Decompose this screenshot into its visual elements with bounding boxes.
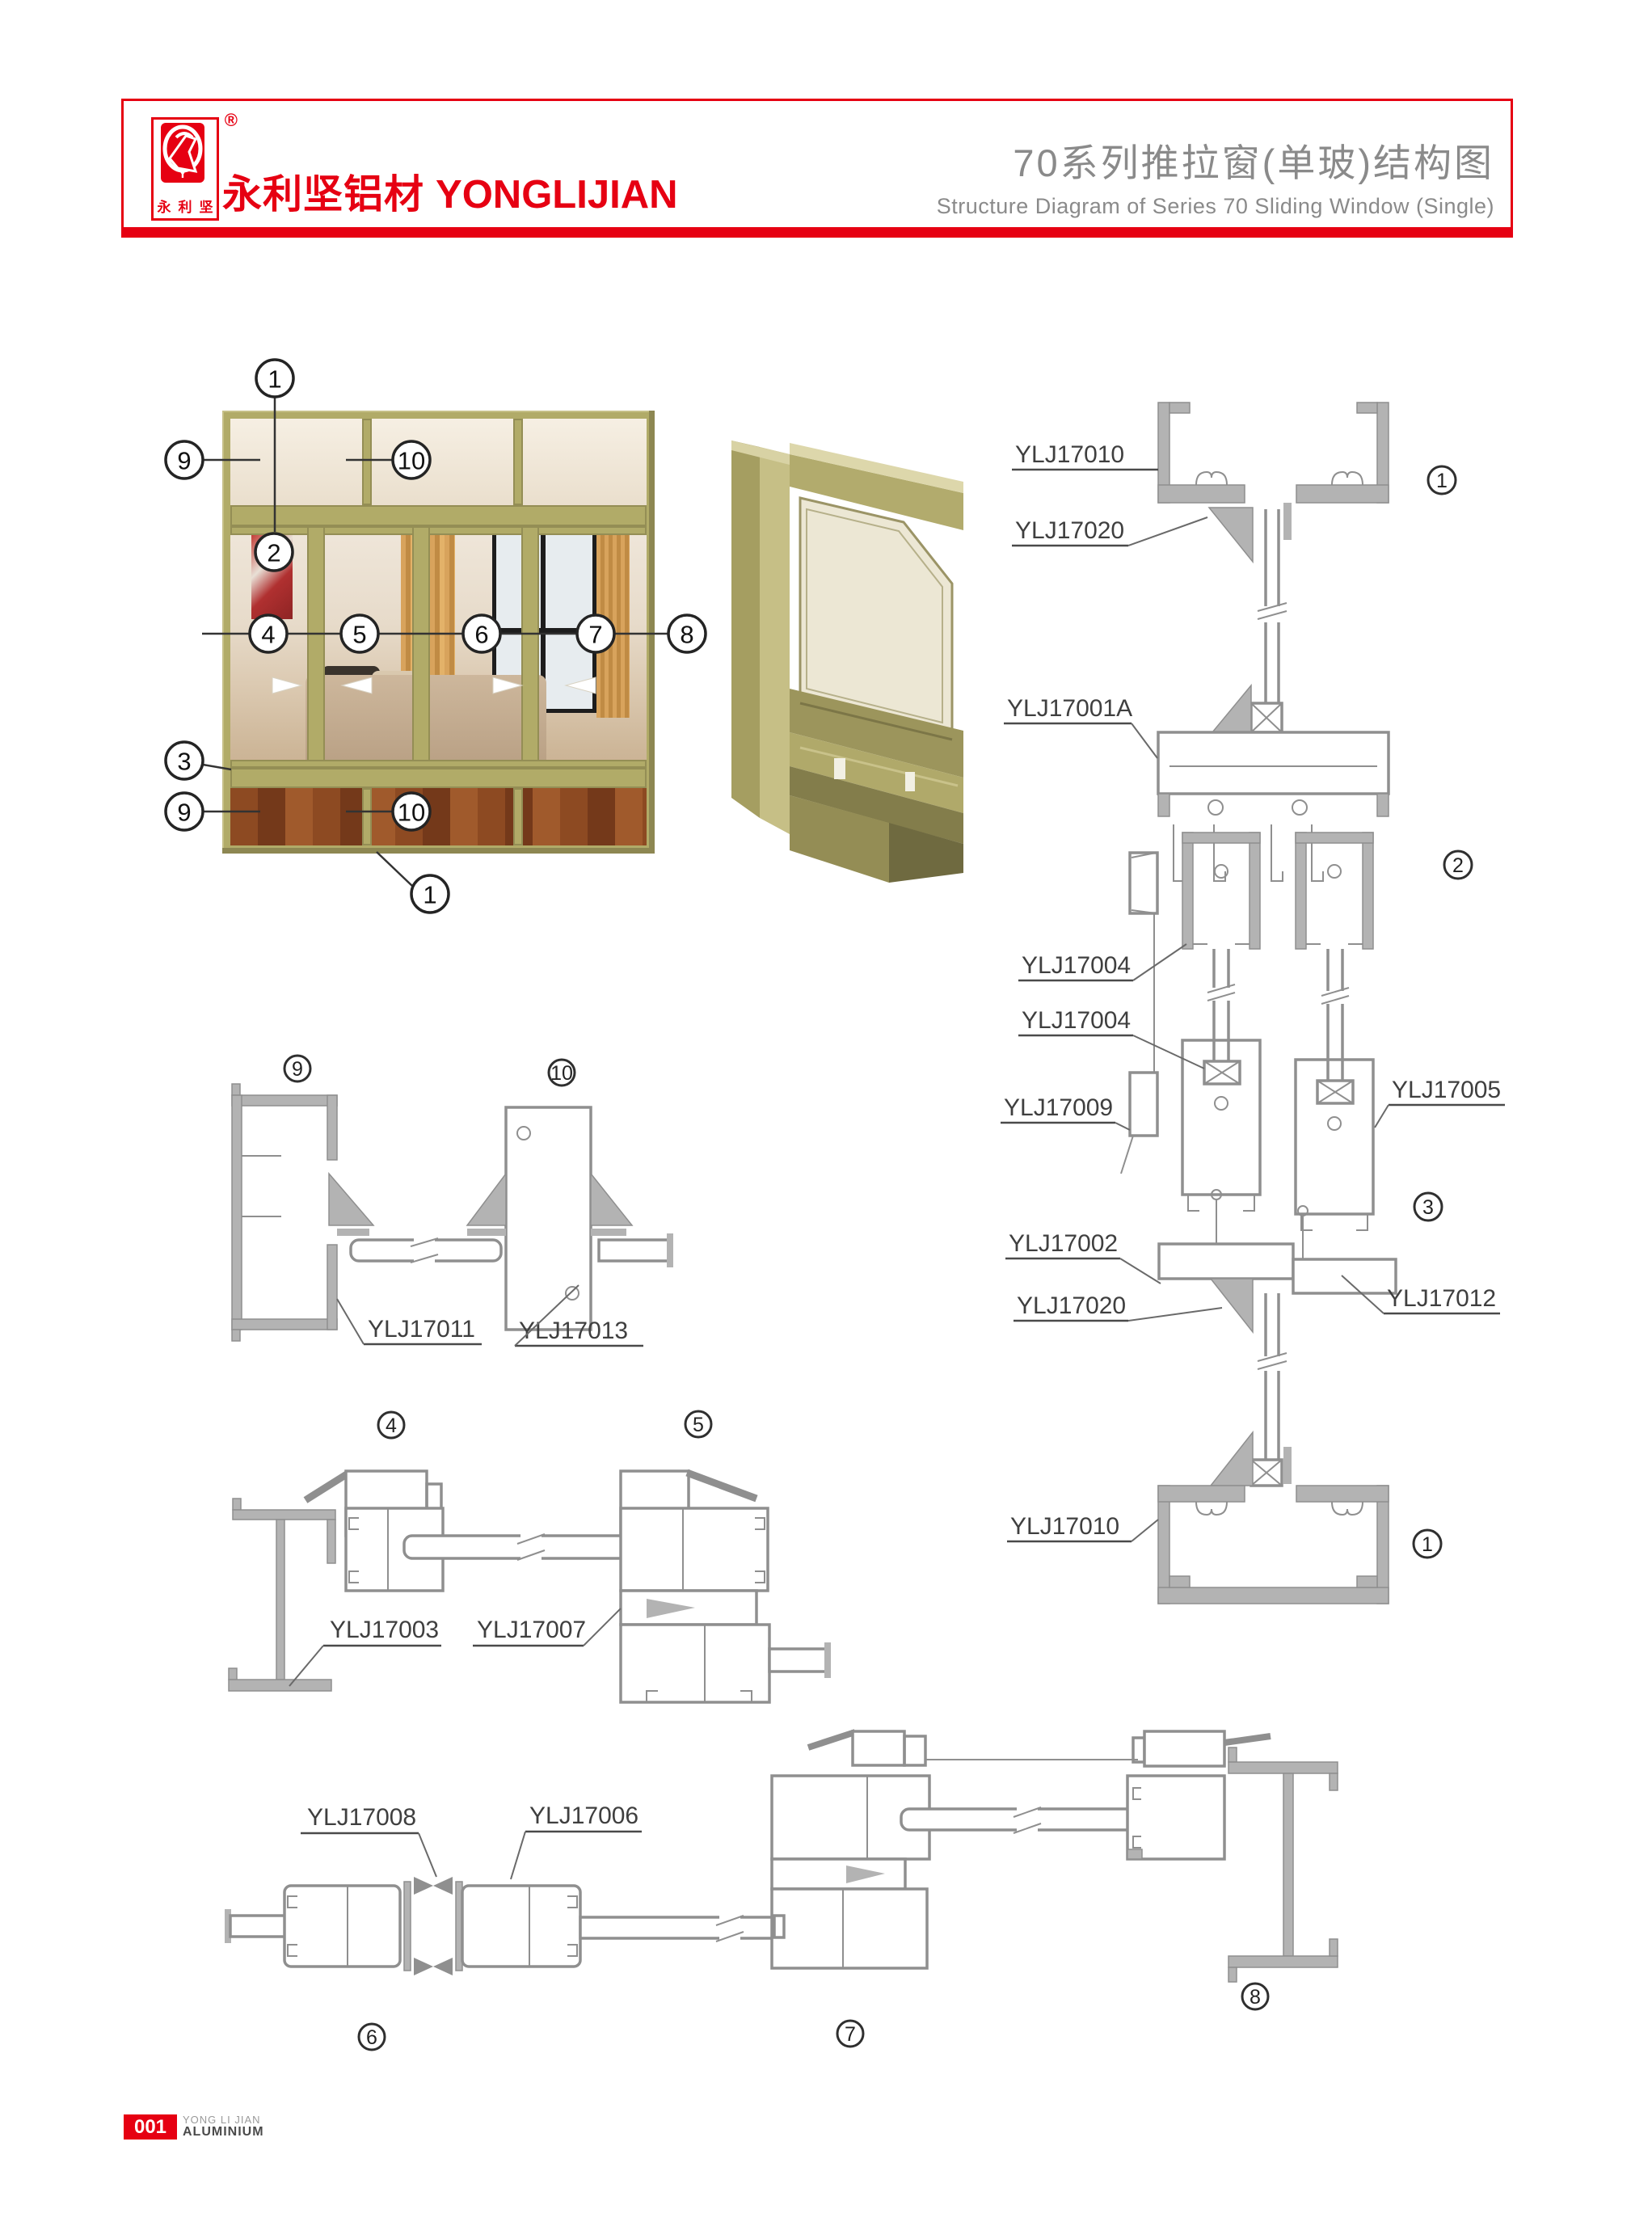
- svg-text:10: 10: [398, 799, 425, 827]
- section-circle-2: 2: [1444, 851, 1472, 879]
- part-label: YLJ17011: [368, 1316, 475, 1343]
- svg-text:1: 1: [268, 365, 281, 394]
- footer-company-name: YONG LI JIAN: [183, 2114, 264, 2126]
- detail-circle-5: 5: [685, 1411, 711, 1437]
- svg-text:5: 5: [352, 621, 366, 649]
- svg-text:8: 8: [680, 621, 693, 649]
- svg-text:5: 5: [693, 1414, 704, 1436]
- part-label: YLJ17008: [307, 1804, 416, 1831]
- part-label: YLJ17010: [1010, 1513, 1119, 1540]
- svg-text:3: 3: [177, 748, 191, 776]
- part-label: YLJ17010: [1015, 441, 1124, 468]
- detail-6-7-8-drawing: YLJ17008 YLJ17006 6 7 8: [225, 1731, 1338, 2050]
- callout-8: 8: [668, 615, 706, 652]
- detail-circle-7: 7: [837, 2021, 863, 2047]
- section-circle-3: 3: [1414, 1193, 1442, 1221]
- part-label: YLJ17004: [1022, 1007, 1131, 1034]
- callout-6: 6: [463, 615, 500, 652]
- part-label: YLJ17020: [1017, 1292, 1126, 1319]
- svg-text:3: 3: [1422, 1196, 1434, 1219]
- part-label: YLJ17004: [1022, 952, 1131, 979]
- svg-text:1: 1: [1422, 1533, 1433, 1556]
- callout-9-bottom: 9: [166, 793, 203, 830]
- svg-text:7: 7: [588, 621, 602, 649]
- detail-circle-8: 8: [1242, 1984, 1268, 2009]
- slide-arrow-icon: [493, 677, 522, 694]
- slide-arrow-icon: [566, 677, 596, 694]
- callout-3: 3: [166, 742, 203, 779]
- svg-text:6: 6: [474, 621, 488, 649]
- svg-text:8: 8: [1250, 1986, 1261, 2009]
- svg-text:4: 4: [386, 1414, 397, 1437]
- footer-company-industry: ALUMINIUM: [183, 2126, 264, 2140]
- section-circle-1-bottom: 1: [1414, 1530, 1441, 1558]
- section-circle-1-top: 1: [1428, 466, 1456, 494]
- callout-1-top: 1: [256, 360, 293, 397]
- callout-1-bottom: 1: [411, 875, 449, 913]
- detail-circle-4: 4: [378, 1412, 404, 1438]
- svg-text:4: 4: [261, 621, 275, 649]
- svg-text:9: 9: [177, 799, 191, 827]
- part-label: YLJ17007: [477, 1617, 586, 1643]
- part-label: YLJ17002: [1009, 1230, 1118, 1257]
- part-label: YLJ17020: [1015, 517, 1124, 544]
- svg-text:2: 2: [267, 539, 280, 567]
- callout-10-bottom: 10: [393, 793, 430, 830]
- callout-9-top: 9: [166, 441, 203, 479]
- svg-text:10: 10: [550, 1062, 573, 1085]
- detail-circle-6: 6: [359, 2024, 385, 2050]
- svg-text:6: 6: [366, 2026, 377, 2049]
- callout-5: 5: [341, 615, 378, 652]
- svg-text:9: 9: [177, 447, 191, 475]
- callout-2: 2: [255, 533, 293, 571]
- profile-corner-render: [731, 441, 963, 883]
- callout-4: 4: [250, 615, 287, 652]
- svg-text:1: 1: [1436, 470, 1448, 492]
- page-number-badge: 001: [124, 2114, 177, 2140]
- detail-circle-9: 9: [284, 1056, 310, 1081]
- svg-text:10: 10: [398, 447, 425, 475]
- vertical-section-drawing: YLJ17010 YLJ17020 YLJ17001A YLJ17004 YLJ…: [1001, 403, 1505, 1604]
- corner-render-and-drawings: 1 9 10 2 4 5 6 7 8 3 9 10 1: [0, 0, 1652, 2226]
- part-label: YLJ17006: [529, 1802, 638, 1829]
- slide-arrow-icon: [342, 677, 372, 694]
- part-label: YLJ17005: [1392, 1077, 1501, 1103]
- svg-text:9: 9: [292, 1058, 303, 1081]
- part-label: YLJ17012: [1387, 1285, 1496, 1312]
- section-labels: YLJ17010 YLJ17020 YLJ17001A YLJ17004 YLJ…: [1001, 441, 1505, 1541]
- svg-text:1: 1: [423, 881, 436, 909]
- detail-9-10-drawing: YLJ17011 YLJ17013 9 10: [232, 1056, 673, 1346]
- photo-callouts: 1 9 10 2 4 5 6 7 8 3 9 10 1: [166, 360, 706, 913]
- detail-4-5-drawing: YLJ17003 YLJ17007 4 5: [229, 1411, 831, 1702]
- slide-arrow-icon: [272, 677, 301, 694]
- svg-text:7: 7: [845, 2023, 856, 2046]
- catalog-page: ® Y 永 利 坚 永利坚铝材YONGLIJIAN 70系列推拉窗(单玻)结构图…: [0, 0, 1652, 2226]
- callout-7: 7: [577, 615, 614, 652]
- footer-company: YONG LI JIAN ALUMINIUM: [183, 2114, 264, 2139]
- part-label: YLJ17001A: [1007, 695, 1132, 722]
- svg-text:2: 2: [1452, 854, 1464, 877]
- detail-circle-10: 10: [549, 1060, 575, 1086]
- part-label: YLJ17003: [330, 1617, 439, 1643]
- part-label: YLJ17013: [519, 1317, 628, 1344]
- part-label: YLJ17009: [1004, 1094, 1113, 1121]
- callout-10-top: 10: [393, 441, 430, 479]
